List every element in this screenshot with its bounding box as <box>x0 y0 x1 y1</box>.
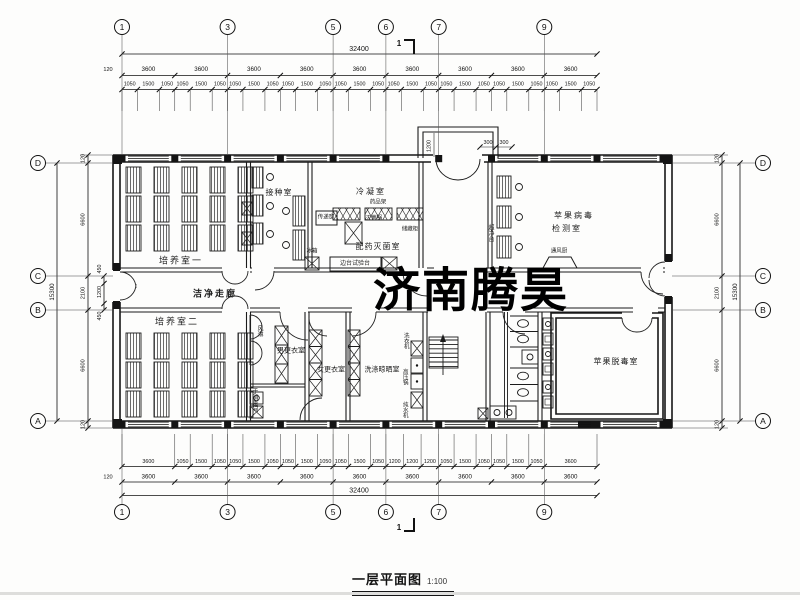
culture-rack <box>126 391 141 417</box>
equip-label-side-bench: 边台试验台 <box>340 261 370 267</box>
wall-pier <box>224 421 231 428</box>
dim-text: 1050 <box>319 459 331 465</box>
room-label-laundry: 洗涤晾晒室 <box>365 367 400 374</box>
dim-text: 1050 <box>372 459 384 465</box>
dim-text: 3600 <box>458 474 472 481</box>
wc-fixture <box>518 389 529 397</box>
dim-text: 3600 <box>405 474 419 481</box>
axis-label: 1 <box>120 507 125 517</box>
dim-text: 3600 <box>247 66 261 73</box>
wall-pier <box>171 155 178 162</box>
bench <box>293 230 305 260</box>
dim-text: 1500 <box>354 82 366 88</box>
dim-text: 3600 <box>142 474 156 481</box>
dim-text: 3600 <box>142 66 156 73</box>
dim-text: 3600 <box>564 66 578 73</box>
dim-text: 1500 <box>301 459 313 465</box>
axis-label: 3 <box>225 507 230 517</box>
dim-text: 3600 <box>511 474 525 481</box>
dim-text: 1050 <box>493 82 505 88</box>
dim-text: 1500 <box>301 82 313 88</box>
dim-text: 1500 <box>512 82 524 88</box>
dim-text: 6600 <box>715 213 721 225</box>
corridor-left-exterior-door <box>120 272 136 300</box>
dim-text: 3600 <box>194 66 208 73</box>
axis-label: 5 <box>331 22 336 32</box>
dim-text: 1500 <box>142 82 154 88</box>
wc-fixture <box>518 335 529 343</box>
dim-total-right: 15300 <box>732 283 739 301</box>
dim-text: 1500 <box>512 459 524 465</box>
bench <box>293 196 305 226</box>
stairs-arrow-head <box>440 334 446 342</box>
culture-rack <box>154 333 169 359</box>
culture-rack <box>238 333 253 359</box>
dim-text: 1050 <box>440 82 452 88</box>
toilet-divider-wall <box>505 312 508 418</box>
bench <box>497 206 511 228</box>
wall-pier <box>435 155 442 162</box>
dim-text: 1500 <box>459 82 471 88</box>
dim-text: 1050 <box>267 82 279 88</box>
dim-text: 3600 <box>511 66 525 73</box>
room-label-air-shower: 风淋 <box>256 325 262 337</box>
dim-text: 1050 <box>372 82 384 88</box>
wall-pier <box>594 421 601 428</box>
culture-rack <box>210 362 225 388</box>
dim-total-bottom: 32400 <box>349 488 369 495</box>
dim-total-top: 32400 <box>349 46 369 53</box>
dim-text: 2100 <box>715 287 721 299</box>
wc-pan <box>545 399 551 405</box>
dim-text: 3600 <box>565 459 577 465</box>
equip-label-autoclave: 高压锅 <box>401 369 407 386</box>
entrance-step-dim: 300 <box>484 140 493 146</box>
culture-rack <box>126 362 141 388</box>
culture-rack <box>182 362 197 388</box>
axis-label: A <box>35 416 41 426</box>
room-label-prep: 配药灭菌室 <box>356 243 401 251</box>
entrance-vestibule <box>418 127 498 180</box>
room-label-culture2: 培养室二 <box>155 318 199 327</box>
culture-rack <box>126 196 141 222</box>
dim-text: 1050 <box>531 459 543 465</box>
dim-text: 1200 <box>406 459 418 465</box>
dim-text: 3600 <box>300 474 314 481</box>
stool <box>516 184 523 191</box>
dim-total-left: 15300 <box>49 283 56 301</box>
culture-rack <box>210 196 225 222</box>
axis-label: 7 <box>436 507 441 517</box>
axis-label: 9 <box>542 507 547 517</box>
equip-label-washer: 洗衣机 <box>402 333 408 350</box>
wall-pier <box>435 421 442 428</box>
virus-test-door <box>641 272 663 294</box>
culture-rack <box>154 196 169 222</box>
culture-rack <box>182 333 197 359</box>
bench <box>252 195 263 216</box>
women-change-back-door <box>300 398 322 420</box>
wall-pier <box>277 421 284 428</box>
culture-rack <box>238 196 253 222</box>
entrance-step-dim: 300 <box>500 140 509 146</box>
culture-rack <box>126 225 141 251</box>
dim-text: 1500 <box>248 459 260 465</box>
stool <box>516 214 523 221</box>
lab-bench <box>333 208 360 220</box>
wall-pier <box>488 421 495 428</box>
stool <box>283 208 290 215</box>
culture-rack <box>210 391 225 417</box>
culture-rack <box>126 167 141 193</box>
dim-text: 1050 <box>388 82 400 88</box>
dim-text: 1050 <box>124 82 136 88</box>
dot <box>416 380 418 382</box>
scan-page-edge <box>0 592 800 595</box>
wall-pier <box>382 421 389 428</box>
axis-label: 6 <box>384 507 389 517</box>
culture-rack <box>182 225 197 251</box>
wall-pier <box>594 155 601 162</box>
dim-text: 1500 <box>565 82 577 88</box>
dim-text: 120 <box>103 67 112 73</box>
axis-label: C <box>35 271 41 281</box>
dim-text: 1200 <box>389 459 401 465</box>
dim-text: 1500 <box>195 459 207 465</box>
culture-rack <box>154 362 169 388</box>
stall-partitions <box>510 316 538 401</box>
dim-text: 1050 <box>214 82 226 88</box>
bench <box>252 167 263 188</box>
dim-text: 2100 <box>81 287 87 299</box>
dim-text: 1200 <box>97 286 103 298</box>
culture-rack <box>210 225 225 251</box>
equip-label-water-purifier: 纯水机 <box>401 402 407 419</box>
section-mark-top-elbow <box>404 40 414 54</box>
dim-text: 6600 <box>81 213 87 225</box>
dim-text: 1050 <box>282 82 294 88</box>
equip-label-pass-window: 传递窗 <box>318 215 335 221</box>
wall-pier <box>660 155 667 162</box>
axis-label: D <box>760 158 766 168</box>
section-mark-bottom-elbow <box>404 518 414 531</box>
dim-text: 1050 <box>229 82 241 88</box>
room-label-culture1: 培养室一 <box>159 257 203 266</box>
dim-text: 1500 <box>354 459 366 465</box>
stool <box>267 203 274 210</box>
dim-text: 1050 <box>214 459 226 465</box>
stool <box>516 244 523 251</box>
section-mark-top-label: 1 <box>397 39 402 48</box>
stool <box>267 231 274 238</box>
dim-text: 3600 <box>353 66 367 73</box>
dim-text: 1500 <box>248 82 260 88</box>
dim-text: 1050 <box>478 82 490 88</box>
wc-drain <box>546 352 551 357</box>
dim-text: 3600 <box>353 474 367 481</box>
dim-text: 1500 <box>459 459 471 465</box>
stairs <box>429 334 458 375</box>
dim-text: 1050 <box>531 82 543 88</box>
dim-text: 1050 <box>440 459 452 465</box>
dim-text: 1050 <box>583 82 595 88</box>
wall-pier <box>330 421 337 428</box>
drawing-title: 一层平面图 <box>352 572 422 587</box>
dim-text: 3600 <box>564 474 578 481</box>
equip-label-fridge: 冰箱 <box>306 249 317 255</box>
bench <box>497 176 511 198</box>
wall-pier <box>488 155 495 162</box>
toilets <box>490 312 538 419</box>
wall-pier <box>277 155 284 162</box>
culture-rack <box>238 225 253 251</box>
dim-text: 1050 <box>161 82 173 88</box>
wall-pier <box>171 421 178 428</box>
dim-text: 1050 <box>425 82 437 88</box>
wc-drain <box>546 322 551 327</box>
dim-text: 1050 <box>335 459 347 465</box>
axis-label: B <box>760 305 766 315</box>
room-label-men-change: 男更衣室 <box>277 348 305 355</box>
entrance-double-door <box>436 159 480 180</box>
room-label-inoculation: 接种室 <box>266 189 293 197</box>
room-label-virus-test-1: 苹果病毒 <box>554 212 594 220</box>
axis-label: 1 <box>120 22 125 32</box>
dim-text: 450 <box>97 312 103 321</box>
equip-label-clean-bench: 超净台 <box>487 224 493 242</box>
detox-room-door <box>622 318 652 332</box>
axis-label: 7 <box>436 22 441 32</box>
wc-pan <box>545 366 551 372</box>
axis-label: C <box>760 271 766 281</box>
room-label-women-change: 女更衣室 <box>317 367 345 374</box>
wall-pier <box>541 155 548 162</box>
room-label-hand-disinfect: 手消毒间 <box>251 388 257 412</box>
dim-text: 1050 <box>229 459 241 465</box>
wc-fixture <box>518 372 529 380</box>
stool <box>267 174 274 181</box>
section-mark-bottom-label: 1 <box>397 523 402 532</box>
dim-text: 3600 <box>142 459 154 465</box>
lab-bench <box>397 208 423 220</box>
culture-rack <box>210 167 225 193</box>
wc-fixture <box>518 320 529 328</box>
dim-text: 3600 <box>194 474 208 481</box>
dim-text: 1050 <box>335 82 347 88</box>
dim-text: 3600 <box>405 66 419 73</box>
entrance-dim: 1200 <box>427 140 433 152</box>
dim-text: 3600 <box>300 66 314 73</box>
room-label-detox: 苹果脱毒室 <box>594 358 639 366</box>
dim-text: 450 <box>97 265 103 274</box>
axis-label: 3 <box>225 22 230 32</box>
stool <box>283 242 290 249</box>
axis-label: D <box>35 158 41 168</box>
dim-text: 3600 <box>458 66 472 73</box>
urinal <box>522 350 538 364</box>
equip-label-cabinet: 储藏柜 <box>402 227 419 233</box>
dot <box>416 364 418 366</box>
dim-text: 1200 <box>424 459 436 465</box>
wall-pier <box>330 155 337 162</box>
dim-text: 1500 <box>195 82 207 88</box>
axis-label: 5 <box>331 507 336 517</box>
culture-rack <box>238 362 253 388</box>
axis-label: A <box>760 416 766 426</box>
culture-rack <box>182 391 197 417</box>
wall-pier <box>119 421 126 428</box>
equip-label-reagent-rack: 药品架 <box>370 200 387 206</box>
culture-rack <box>154 225 169 251</box>
dim-text: 1050 <box>478 459 490 465</box>
bench <box>252 223 263 244</box>
culture-rack <box>126 333 141 359</box>
axis-label: 9 <box>542 22 547 32</box>
wall-pier <box>224 155 231 162</box>
floor-plan-page: 1 1 324003600360036003600360036003600360… <box>0 0 800 600</box>
culture-rack <box>182 196 197 222</box>
dim-text: 1050 <box>319 82 331 88</box>
room-label-corridor: 洁净走廊 <box>193 290 237 299</box>
dim-text: 3600 <box>247 474 261 481</box>
dim-text: 6600 <box>81 359 87 371</box>
dim-text: 1050 <box>176 82 188 88</box>
wall-pier <box>541 421 548 428</box>
inoculation-door <box>255 271 274 290</box>
wall-pier <box>382 155 389 162</box>
axis-label: 6 <box>384 22 389 32</box>
dim-text: 1050 <box>493 459 505 465</box>
room-label-condensation: 冷凝室 <box>356 188 386 196</box>
culture-rack <box>238 167 253 193</box>
dim-text: 1050 <box>176 459 188 465</box>
dim-text: 1050 <box>282 459 294 465</box>
room-label-virus-test-2: 检测室 <box>552 225 582 233</box>
culture-rack <box>154 391 169 417</box>
wall-pier <box>660 421 667 428</box>
culture-rack <box>182 167 197 193</box>
wc-pan <box>545 336 551 342</box>
dim-text: 1050 <box>546 82 558 88</box>
culture-rack <box>154 167 169 193</box>
dim-text: 120 <box>103 475 112 481</box>
drawing-scale: 1:100 <box>427 577 447 586</box>
dim-text: 1050 <box>267 459 279 465</box>
wc-drain <box>546 385 551 390</box>
watermark: 济南腾昊 <box>373 252 569 321</box>
dim-text: 1500 <box>406 82 418 88</box>
dim-text: 6600 <box>715 359 721 371</box>
culture1-door <box>222 271 248 284</box>
equip-label-sterilizer: 灭菌锅 <box>366 216 383 222</box>
wall-pier <box>119 155 126 162</box>
axis-label: B <box>35 305 41 315</box>
culture-rack <box>210 333 225 359</box>
